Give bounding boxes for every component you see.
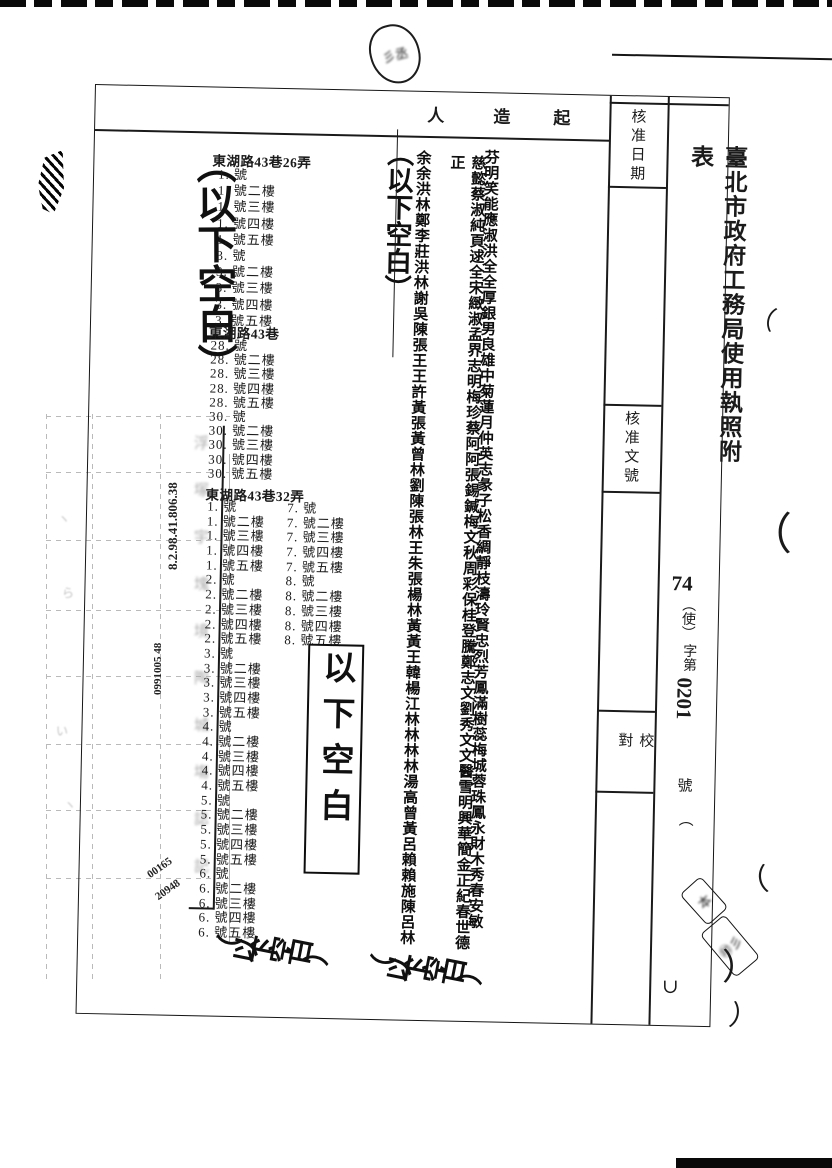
faint-grid-line <box>46 414 47 982</box>
header-row-border <box>95 129 610 141</box>
blank-note-bottom-addresses: （以下空白） <box>213 936 322 974</box>
address-block-3-right: 7. 號7. 號二樓7. 號三樓7. 號四樓7. 號五樓8. 號8. 號二樓8.… <box>284 501 345 649</box>
builder-header-char: 人 <box>427 101 445 126</box>
bleedthrough-mark: い <box>56 722 68 739</box>
stray-mark: ∪ <box>662 974 679 999</box>
proofread-cell: 校對 <box>613 716 656 789</box>
table-column-border <box>590 96 611 1024</box>
blank-note-boxed: 以下空白 <box>304 644 365 875</box>
stamp-scribble: 本 <box>693 890 715 913</box>
address-line: 1. 號四樓 <box>217 215 275 232</box>
form-table: 人 造 起 核准日期 核准文號 校對 臺北市政府工務局使用執照附表 74 （使）… <box>76 84 730 1027</box>
stray-mark: （ <box>735 854 771 902</box>
builder-header-char: 起 <box>553 104 571 129</box>
fold-mark <box>38 150 64 214</box>
approval-doc-no-cell: 核准文號 <box>620 408 643 488</box>
table-column-border <box>648 97 669 1025</box>
stamp-scribble: ㊞彡 <box>714 930 746 961</box>
form-title: 臺北市政府工務局使用執照附表 <box>676 144 751 485</box>
page: { "form": { "title": "臺北市政府工務局使用執照附表", "… <box>0 0 832 1168</box>
cell-border <box>595 791 653 794</box>
bleedthrough-mark: ヽ <box>58 510 70 527</box>
doc-number-paren: （ <box>674 811 695 831</box>
bleedthrough-mark: ヽ <box>64 796 76 813</box>
address-block-1: 1. 號1. 號二樓1. 號三樓1. 號四樓1. 號五樓3. 號3. 號二樓3.… <box>215 167 276 330</box>
address-line: 3. 號 <box>216 248 274 265</box>
address-line: 1. 號五樓 <box>217 231 275 248</box>
address-line: 3. 號三樓 <box>216 280 274 297</box>
bleedthrough-mark: ら <box>62 584 74 601</box>
cell-border <box>603 404 661 407</box>
scan-artifact-bottom-bar <box>676 1158 832 1168</box>
address-line: 1. 號二樓 <box>218 183 276 200</box>
address-line: 30. 號五樓 <box>208 466 274 482</box>
approval-date-cell: 核准日期 <box>626 108 649 184</box>
address-line: 1. 號三樓 <box>217 199 275 216</box>
cell-border <box>597 710 655 713</box>
doc-number-digits: 0201 <box>670 677 696 740</box>
scan-artifact-top-bar <box>0 0 832 7</box>
ink-stamp: 彡丞 <box>363 19 426 89</box>
address-block-3-left: 1. 號1. 號二樓1. 號三樓1. 號四樓1. 號五樓2. 號2. 號二樓2.… <box>198 499 265 941</box>
address-line: 3. 號二樓 <box>216 264 274 281</box>
sheet-edge-line <box>612 54 832 60</box>
cell-border <box>602 491 660 494</box>
cell-border <box>608 186 666 189</box>
builder-header-char: 造 <box>493 102 511 127</box>
blank-note-bottom-names: （以下空白） <box>367 955 476 993</box>
doc-number-mid: 字第 <box>678 643 699 677</box>
stray-mark: （ <box>745 295 780 338</box>
doc-number-suffix: 號 <box>673 777 694 799</box>
stray-mark: ） <box>726 994 762 1039</box>
stamp-scribble: 彡丞 <box>380 42 410 67</box>
stray-mark: （ <box>748 498 792 562</box>
address-line: 1. 號 <box>218 167 276 184</box>
doc-number-year: 74 <box>671 571 693 596</box>
address-line: 3. 號四樓 <box>215 296 273 313</box>
address-block-2: 28. 號28. 號二樓28. 號三樓28. 號四樓28. 號五樓30. 號30… <box>208 338 276 481</box>
